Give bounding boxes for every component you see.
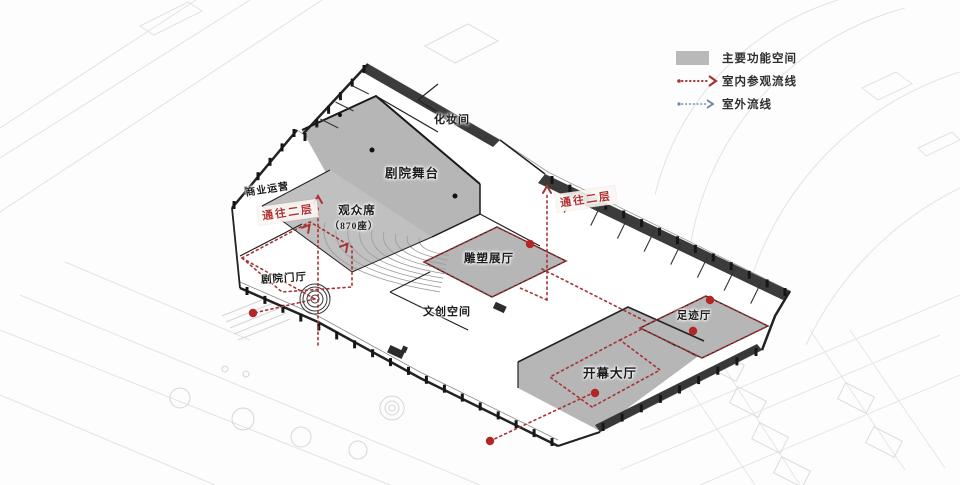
outdoor-route-arrow-icon <box>676 97 722 111</box>
legend-row-outdoor-route: 室外流线 <box>676 96 876 112</box>
legend-row-indoor-route: 室内参观流线 <box>676 73 876 89</box>
axonometric-floorplan-diagram: { "legend": { "main_space_label": "主要功能空… <box>0 0 960 485</box>
legend-indoor-route-label: 室内参观流线 <box>722 73 797 89</box>
legend-main-space-label: 主要功能空间 <box>722 50 797 66</box>
legend: 主要功能空间 室内参观流线 室外流线 <box>676 50 876 119</box>
legend-row-main-space: 主要功能空间 <box>676 50 876 66</box>
legend-outdoor-route-label: 室外流线 <box>722 96 772 112</box>
main-space-swatch-icon <box>676 51 722 65</box>
tree-circles <box>170 366 404 459</box>
indoor-route-arrow-icon <box>676 74 722 88</box>
